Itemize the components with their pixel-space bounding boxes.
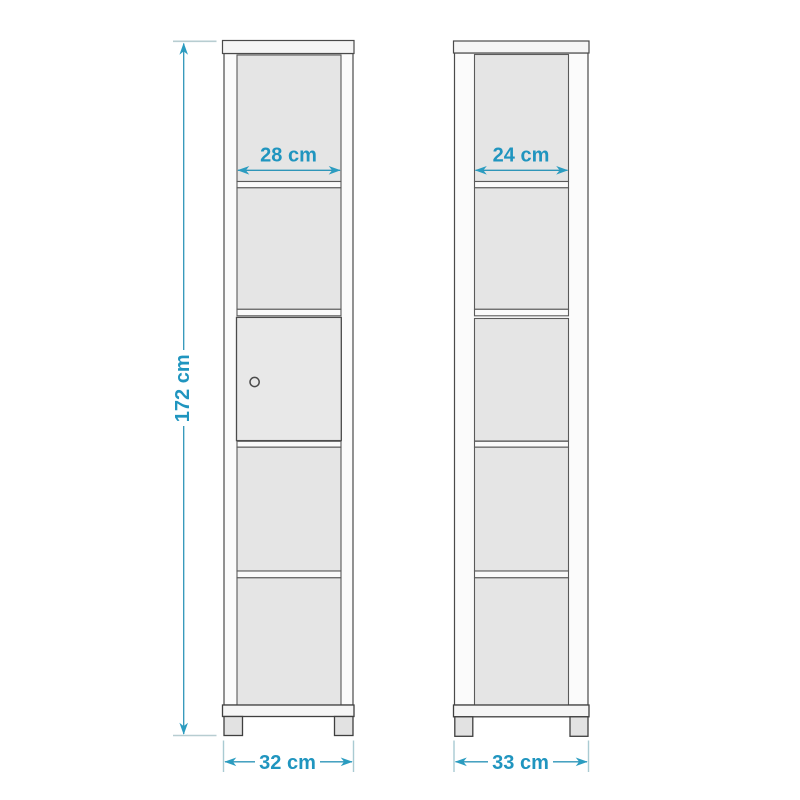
svg-text:28 cm: 28 cm [260,145,317,167]
svg-text:32 cm: 32 cm [259,752,316,774]
svg-text:33 cm: 33 cm [492,752,549,774]
svg-text:24 cm: 24 cm [493,145,550,167]
svg-text:172 cm: 172 cm [172,354,194,422]
